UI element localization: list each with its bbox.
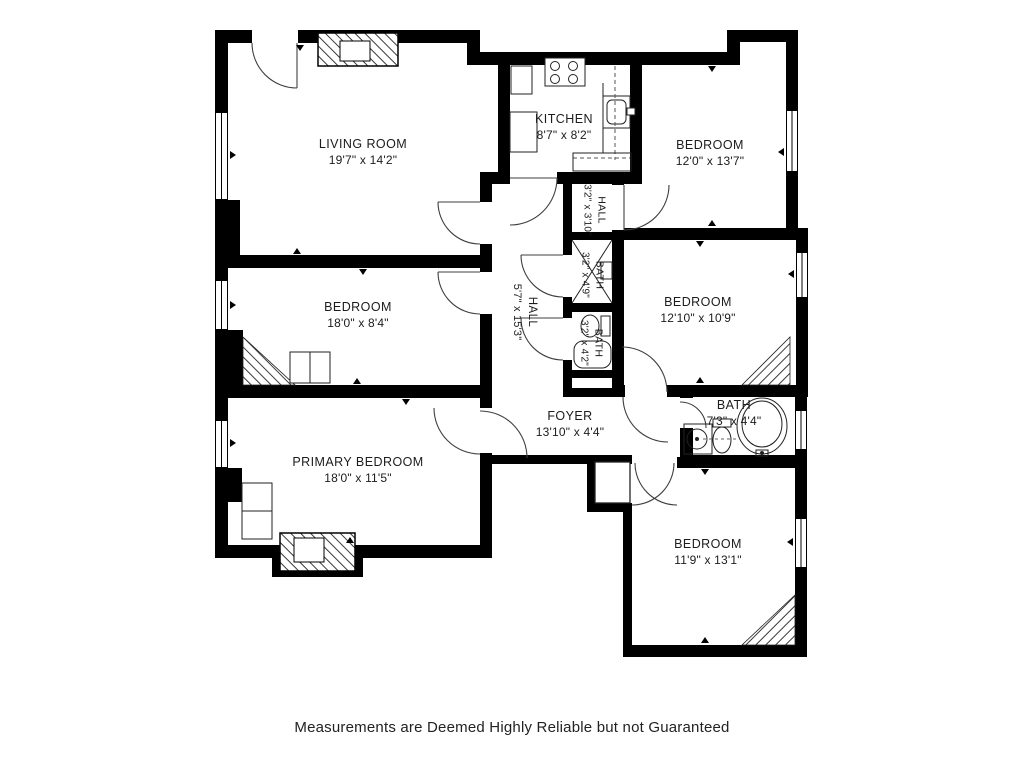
room-name: BEDROOM xyxy=(674,536,742,553)
room-label-hall-small: HALL 3'2" x 3'10" xyxy=(580,184,607,236)
room-label-bedroom-bottom: BEDROOM 11'9" x 13'1" xyxy=(674,536,742,568)
room-label-bath-small-top: BATH 3'2" x 4'9" xyxy=(578,252,605,298)
floorplan-page: LIVING ROOM 19'7" x 14'2" KITCHEN 8'7" x… xyxy=(0,0,1024,769)
room-name: BEDROOM xyxy=(324,299,392,316)
room-label-kitchen: KITCHEN 8'7" x 8'2" xyxy=(535,111,593,143)
cabinet-bedroom-mid-left xyxy=(290,352,330,383)
room-name: BATH xyxy=(591,320,605,366)
kitchen-stove xyxy=(545,58,585,86)
room-name: FOYER xyxy=(536,408,604,425)
room-dimensions: 12'10" x 10'9" xyxy=(660,310,735,326)
room-dimensions: 18'0" x 8'4" xyxy=(324,315,392,331)
room-label-bedroom-mid-right: BEDROOM 12'10" x 10'9" xyxy=(660,294,735,326)
room-label-bedroom-top-right: BEDROOM 12'0" x 13'7" xyxy=(676,137,744,169)
room-name: PRIMARY BEDROOM xyxy=(292,454,423,471)
room-dimensions: 3'2" x 4'2" xyxy=(577,320,590,366)
room-name: BEDROOM xyxy=(660,294,735,311)
room-name: BEDROOM xyxy=(676,137,744,154)
room-dimensions: 12'0" x 13'7" xyxy=(676,153,744,169)
room-dimensions: 5'7" x 15'3" xyxy=(509,284,524,341)
window-living-room xyxy=(216,113,228,200)
window-primary-bedroom xyxy=(216,421,228,468)
hatch-living-room-top xyxy=(318,33,398,66)
window-bath-main xyxy=(796,411,807,450)
room-dimensions: 13'10" x 4'4" xyxy=(536,424,604,440)
disclaimer-text: Measurements are Deemed Highly Reliable … xyxy=(0,719,1024,736)
room-dimensions: 3'2" x 3'10" xyxy=(580,184,593,236)
window-bedroom-top-right xyxy=(787,111,798,172)
window-bedroom-bottom xyxy=(796,519,807,568)
floorplan-svg xyxy=(0,0,1024,769)
room-label-bath-small-bottom: BATH 3'2" x 4'2" xyxy=(577,320,604,366)
room-dimensions: 19'7" x 14'2" xyxy=(319,152,407,168)
room-label-bedroom-mid-left: BEDROOM 18'0" x 8'4" xyxy=(324,299,392,331)
room-name: BATH xyxy=(707,397,762,414)
room-name: LIVING ROOM xyxy=(319,136,407,153)
window-bedroom-mid-left xyxy=(216,281,228,330)
room-name: BATH xyxy=(592,252,606,298)
closet-foyer xyxy=(595,462,630,503)
window-bedroom-mid-right xyxy=(797,253,808,298)
background xyxy=(0,0,1024,769)
room-label-foyer: FOYER 13'10" x 4'4" xyxy=(536,408,604,440)
room-dimensions: 3'2" x 4'9" xyxy=(578,252,591,298)
room-label-bath-main: BATH 7'3" x 4'4" xyxy=(707,397,762,429)
room-name: KITCHEN xyxy=(535,111,593,128)
room-dimensions: 11'9" x 13'1" xyxy=(674,552,742,568)
room-dimensions: 7'3" x 4'4" xyxy=(707,413,762,429)
room-name: HALL xyxy=(594,184,608,236)
cabinet-primary-bedroom xyxy=(242,483,272,539)
room-dimensions: 18'0" x 11'5" xyxy=(292,470,423,486)
room-dimensions: 8'7" x 8'2" xyxy=(535,127,593,143)
room-name: HALL xyxy=(524,284,539,341)
room-label-primary-bedroom: PRIMARY BEDROOM 18'0" x 11'5" xyxy=(292,454,423,486)
room-label-living-room: LIVING ROOM 19'7" x 14'2" xyxy=(319,136,407,168)
room-label-hall-main: HALL 5'7" x 15'3" xyxy=(509,284,539,341)
